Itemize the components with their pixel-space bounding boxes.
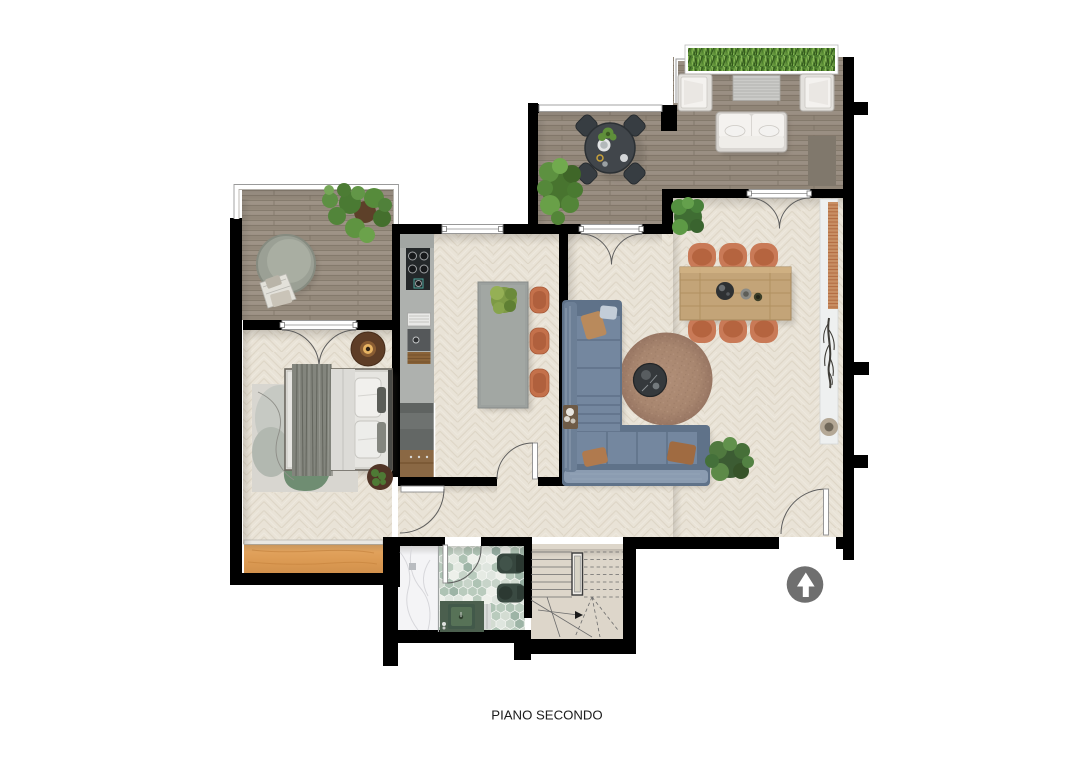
svg-text:PIANO SECONDO: PIANO SECONDO	[491, 708, 602, 723]
